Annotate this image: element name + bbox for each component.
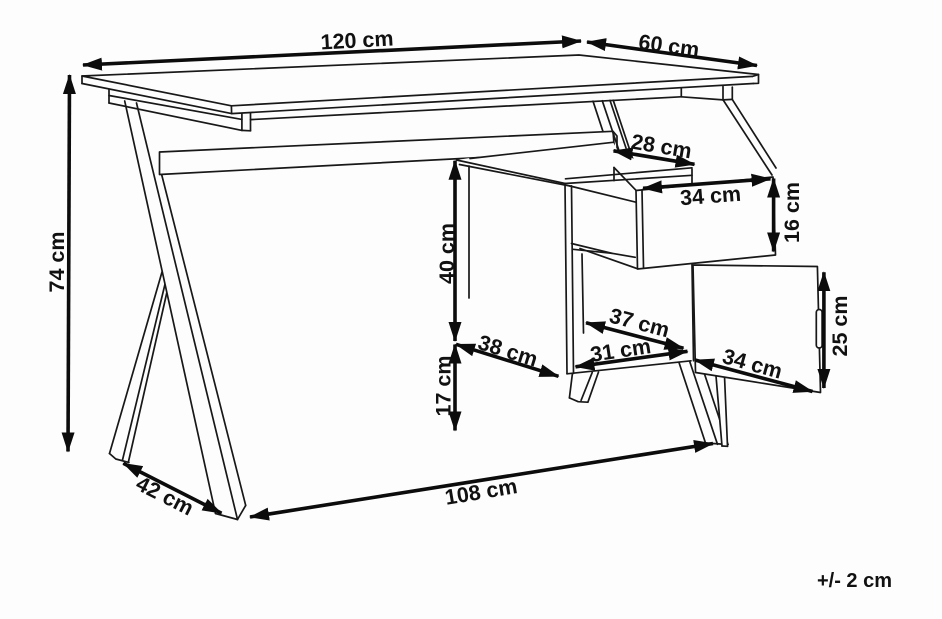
svg-text:34 cm: 34 cm [679,182,742,210]
svg-text:42 cm: 42 cm [132,471,197,520]
svg-text:120 cm: 120 cm [320,27,394,55]
svg-text:38 cm: 38 cm [475,330,540,371]
svg-text:74 cm: 74 cm [45,232,69,293]
svg-text:40 cm: 40 cm [435,223,459,284]
svg-text:17 cm: 17 cm [432,356,456,417]
svg-text:+/- 2 cm: +/- 2 cm [817,570,892,592]
svg-text:25 cm: 25 cm [828,296,852,357]
svg-text:28 cm: 28 cm [629,130,693,164]
svg-text:60 cm: 60 cm [637,30,701,62]
svg-text:16 cm: 16 cm [780,182,804,243]
svg-text:108 cm: 108 cm [443,474,519,510]
